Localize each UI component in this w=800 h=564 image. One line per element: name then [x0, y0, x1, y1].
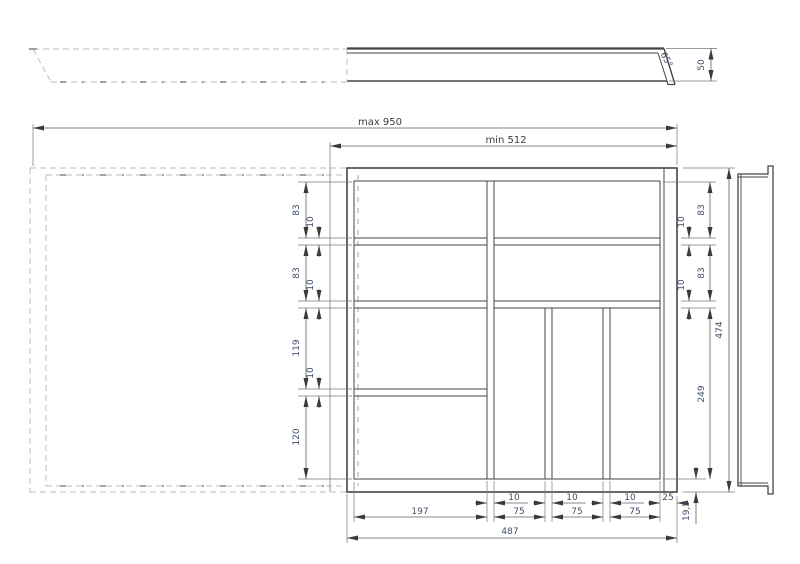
dim-bottom-197: 197	[411, 507, 428, 517]
dim-bottom-wall: 19,5	[682, 501, 692, 521]
horizontal-divider-1	[354, 238, 660, 245]
dim-bottom-75-c: 75	[629, 507, 640, 517]
dim-bottom-10-b: 10	[566, 493, 578, 503]
dim-right-83-mid: 83	[697, 267, 707, 278]
dim-right-474: 474	[715, 321, 725, 338]
plan-view-tray	[347, 168, 677, 492]
side-rail-profile	[738, 166, 773, 494]
top-dimensions: max 950 min 512	[33, 117, 677, 166]
dim-left-83-top: 83	[292, 204, 302, 215]
dim-right-10-mid: 10	[677, 279, 687, 291]
central-divider	[487, 181, 494, 479]
horizontal-divider-2	[354, 301, 660, 308]
dim-left-83-mid: 83	[292, 267, 302, 278]
dim-left-120: 120	[292, 428, 302, 445]
right-dimension-chain: 83 83 249 474 10 10	[663, 168, 735, 492]
vertical-subdivider-1	[545, 308, 552, 479]
dim-right-249: 249	[697, 385, 707, 402]
dim-right-10-top: 10	[677, 216, 687, 228]
dim-left-10-bot: 10	[306, 367, 316, 379]
dim-max-width: max 950	[358, 117, 402, 128]
side-view: 50 65°	[29, 49, 717, 85]
dim-bottom-10-a: 10	[508, 493, 520, 503]
bottom-dimensions: 10 10 10 25 197 75 75 75 487 19,5	[347, 467, 696, 543]
dim-left-119: 119	[292, 339, 302, 356]
dim-left-10-top: 10	[306, 216, 316, 228]
dim-side-height: 50	[697, 59, 707, 71]
dim-bottom-25: 25	[662, 493, 673, 503]
dim-bottom-75-a: 75	[513, 507, 524, 517]
horizontal-divider-3	[354, 389, 487, 396]
vertical-subdivider-2	[603, 308, 610, 479]
dim-min-width: min 512	[485, 135, 526, 146]
dim-right-83-top: 83	[697, 204, 707, 215]
technical-drawing-page: 50 65°	[0, 0, 800, 564]
dim-bottom-75-b: 75	[571, 507, 582, 517]
cutlery-tray-drawing: 50 65°	[0, 0, 800, 564]
dim-bottom-total: 487	[501, 527, 518, 537]
dim-left-10-mid: 10	[306, 279, 316, 291]
dim-bottom-10-c: 10	[624, 493, 636, 503]
left-dimension-chain: 83 83 119 120 10 10 10	[292, 182, 352, 479]
